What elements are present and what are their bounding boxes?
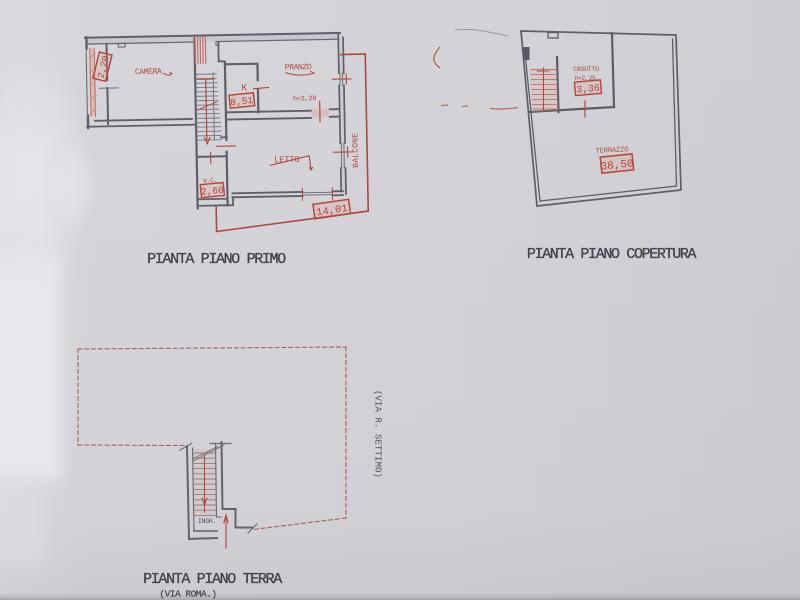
svg-text:PRANZO: PRANZO bbox=[285, 63, 312, 73]
svg-text:K: K bbox=[241, 82, 247, 93]
svg-text:BALCONE: BALCONE bbox=[351, 133, 361, 168]
svg-text:2,60: 2,60 bbox=[201, 185, 225, 198]
svg-text:INGR.: INGR. bbox=[198, 518, 216, 525]
svg-text:(VIA R. SETTIMO): (VIA R. SETTIMO) bbox=[373, 390, 383, 478]
svg-text:h=3,20: h=3,20 bbox=[293, 95, 317, 103]
svg-text:CAMERA: CAMERA bbox=[135, 68, 162, 78]
svg-text:PIANTA PIANO TERRA: PIANTA PIANO TERRA bbox=[143, 571, 282, 588]
svg-text:PIANTA PIANO COPERTURA: PIANTA PIANO COPERTURA bbox=[527, 246, 697, 263]
svg-text:CASOTTO: CASOTTO bbox=[573, 66, 599, 73]
svg-text:3,36: 3,36 bbox=[576, 82, 601, 95]
svg-text:(VIA ROMA.): (VIA ROMA.) bbox=[159, 589, 216, 600]
svg-text:PIANTA PIANO PRIMO: PIANTA PIANO PRIMO bbox=[147, 251, 286, 268]
